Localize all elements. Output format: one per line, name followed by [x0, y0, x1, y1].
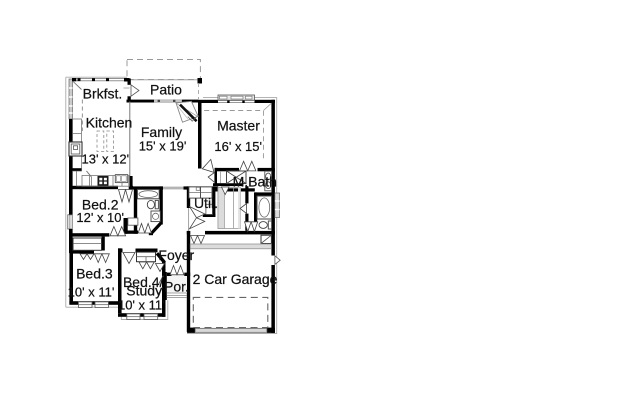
svg-text:Master: Master	[217, 118, 260, 134]
svg-text:M.Bath: M.Bath	[233, 173, 277, 189]
svg-text:2 Car Garage: 2 Car Garage	[193, 271, 278, 287]
svg-text:Util.: Util.	[194, 195, 218, 211]
svg-text:Foyer: Foyer	[158, 247, 194, 263]
svg-text:13' x 12': 13' x 12'	[81, 151, 129, 166]
svg-text:Kitchen: Kitchen	[86, 115, 133, 131]
svg-text:10' x 11': 10' x 11'	[118, 297, 165, 312]
svg-text:Family: Family	[141, 124, 182, 140]
svg-text:12' x 10': 12' x 10'	[76, 210, 124, 225]
svg-text:10' x 11': 10' x 11'	[68, 285, 115, 300]
svg-text:Por.: Por.	[164, 279, 189, 295]
svg-text:Brkfst.: Brkfst.	[83, 86, 123, 102]
svg-text:Patio: Patio	[150, 81, 182, 97]
svg-text:15' x 19': 15' x 19'	[139, 139, 187, 154]
svg-text:16' x 15': 16' x 15'	[214, 139, 262, 154]
svg-text:Study: Study	[126, 283, 162, 299]
svg-text:Bed.3: Bed.3	[76, 266, 113, 282]
